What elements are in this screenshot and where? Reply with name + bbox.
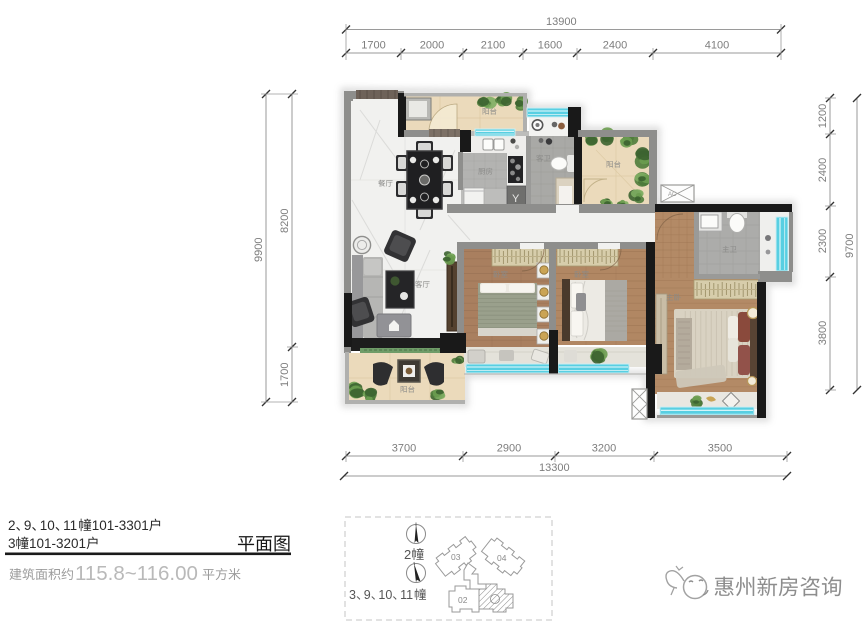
svg-text:1600: 1600 <box>538 40 562 52</box>
svg-text:3: 3 <box>8 536 16 551</box>
svg-text:03: 03 <box>451 552 461 562</box>
svg-text:9: 9 <box>364 588 371 602</box>
svg-text:2: 2 <box>8 518 16 533</box>
svg-text:2100: 2100 <box>481 40 505 52</box>
svg-text:11: 11 <box>63 518 77 533</box>
svg-text:04: 04 <box>497 553 507 563</box>
svg-text:10: 10 <box>40 518 55 533</box>
svg-text:2: 2 <box>404 547 411 562</box>
svg-text:3700: 3700 <box>392 443 416 455</box>
svg-text:11: 11 <box>400 588 413 602</box>
svg-text:1700: 1700 <box>361 40 385 52</box>
svg-text:4100: 4100 <box>705 40 729 52</box>
svg-text:101-3201: 101-3201 <box>29 536 86 551</box>
svg-text:1200: 1200 <box>817 104 829 128</box>
svg-text:9: 9 <box>24 518 32 533</box>
svg-text:2300: 2300 <box>817 229 829 253</box>
svg-text:2400: 2400 <box>603 40 627 52</box>
svg-text:3500: 3500 <box>708 443 732 455</box>
svg-text:2000: 2000 <box>420 40 444 52</box>
svg-text:8200: 8200 <box>279 209 291 233</box>
svg-text:9900: 9900 <box>253 238 265 262</box>
svg-text:2900: 2900 <box>497 443 521 455</box>
svg-text:AC: AC <box>668 192 677 198</box>
svg-text:101-3301: 101-3301 <box>92 518 149 533</box>
svg-text:1700: 1700 <box>279 363 291 387</box>
svg-text:3: 3 <box>349 588 356 602</box>
svg-text:115.8~116.00: 115.8~116.00 <box>75 562 198 585</box>
svg-text:3200: 3200 <box>592 443 616 455</box>
svg-text:Y: Y <box>512 193 520 205</box>
svg-text:2400: 2400 <box>817 158 829 182</box>
svg-text:3800: 3800 <box>817 321 829 345</box>
svg-text:9700: 9700 <box>844 234 856 258</box>
svg-text:10: 10 <box>378 588 392 602</box>
svg-text:02: 02 <box>458 595 468 605</box>
svg-text:13900: 13900 <box>546 16 577 28</box>
svg-text:13300: 13300 <box>539 462 570 474</box>
